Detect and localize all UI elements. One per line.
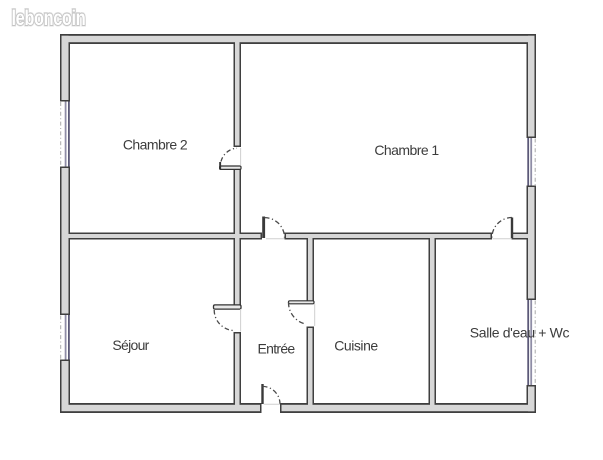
- svg-text:leboncoin: leboncoin: [12, 6, 86, 29]
- svg-text:Séjour: Séjour: [112, 337, 149, 353]
- svg-text:Entrée: Entrée: [257, 341, 295, 357]
- svg-text:Chambre 2: Chambre 2: [123, 137, 188, 153]
- svg-text:Chambre 1: Chambre 1: [374, 142, 439, 158]
- svg-text:Salle d'eau + Wc: Salle d'eau + Wc: [470, 325, 570, 341]
- svg-text:Cuisine: Cuisine: [334, 338, 378, 354]
